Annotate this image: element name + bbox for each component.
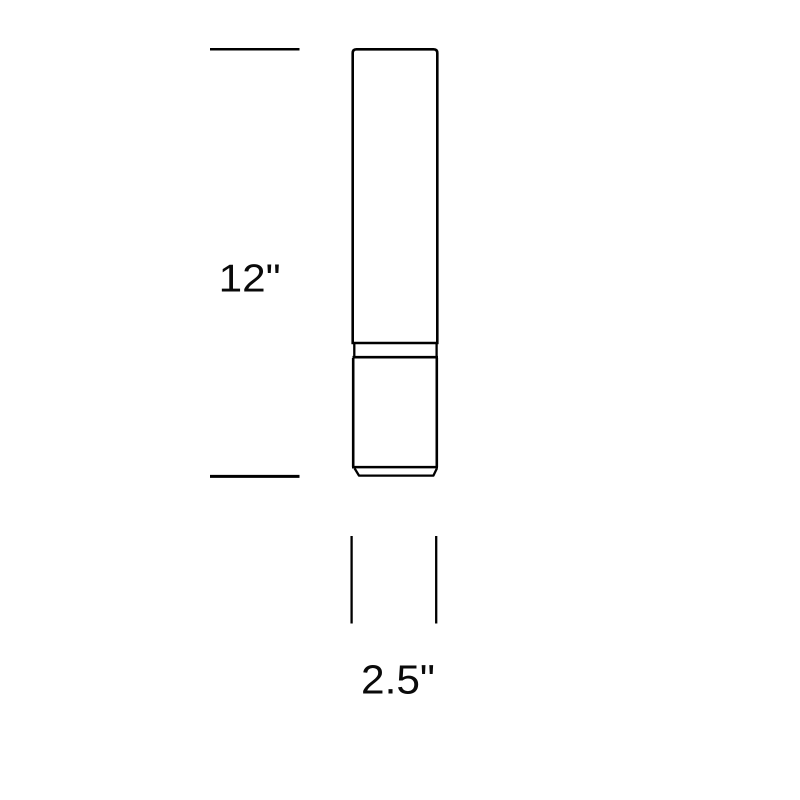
svg-text:12": 12" [219,258,281,301]
svg-text:2.5": 2.5" [361,656,435,702]
